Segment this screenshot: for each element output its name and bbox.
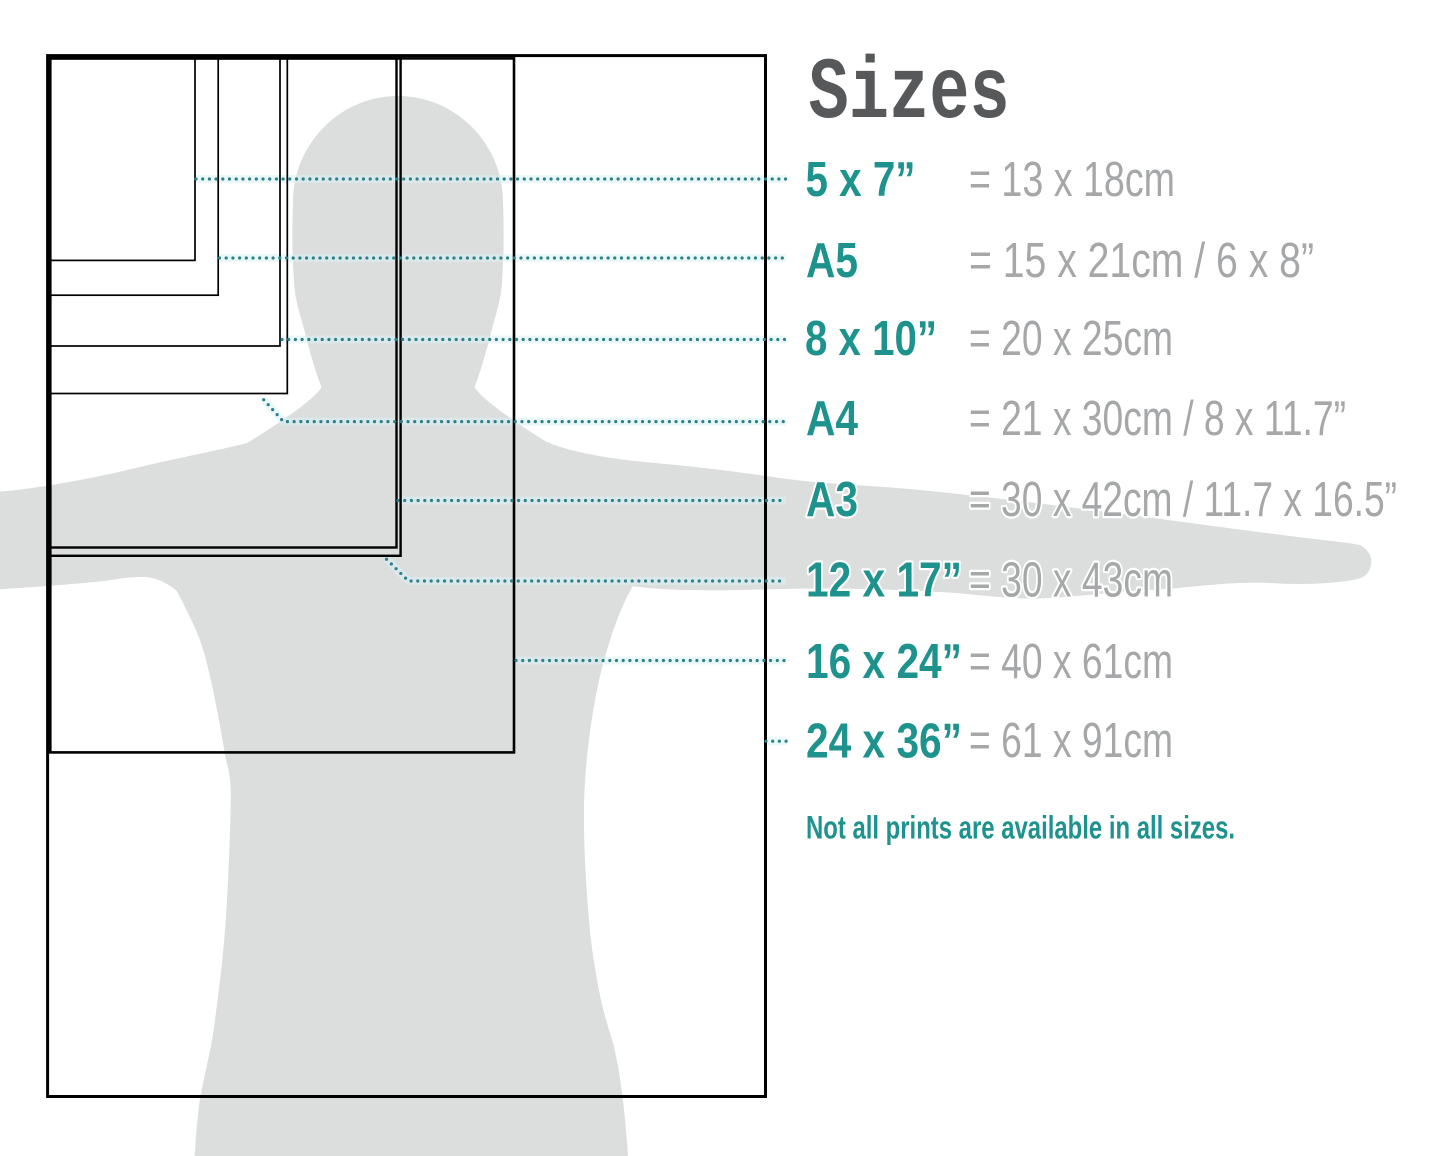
svg-text:16 x 24”: 16 x 24” <box>806 634 962 689</box>
svg-text:= 20 x 25cm: = 20 x 25cm <box>969 312 1173 366</box>
svg-text:= 15 x 21cm / 6 x 8”: = 15 x 21cm / 6 x 8” <box>969 234 1314 288</box>
svg-text:8 x 10”: 8 x 10” <box>805 311 937 366</box>
svg-text:= 30 x 43cm: = 30 x 43cm <box>969 553 1173 607</box>
svg-text:A5: A5 <box>806 233 858 288</box>
svg-text:= 30 x 42cm / 11.7 x 16.5”: = 30 x 42cm / 11.7 x 16.5” <box>969 473 1397 527</box>
svg-text:24 x 36”: 24 x 36” <box>806 714 962 769</box>
svg-text:= 40 x 61cm: = 40 x 61cm <box>969 635 1173 689</box>
svg-text:A3: A3 <box>806 472 858 527</box>
svg-text:5 x 7”: 5 x 7” <box>806 152 916 207</box>
svg-text:= 21 x 30cm / 8 x 11.7”: = 21 x 30cm / 8 x 11.7” <box>969 392 1346 446</box>
svg-text:Not all prints are available i: Not all prints are available in all size… <box>806 809 1235 845</box>
svg-text:12 x 17”: 12 x 17” <box>806 552 962 607</box>
svg-text:= 13 x 18cm: = 13 x 18cm <box>969 153 1175 207</box>
svg-text:= 61 x 91cm: = 61 x 91cm <box>969 714 1173 768</box>
svg-text:A4: A4 <box>806 391 858 446</box>
svg-text:Sizes: Sizes <box>809 46 1010 145</box>
